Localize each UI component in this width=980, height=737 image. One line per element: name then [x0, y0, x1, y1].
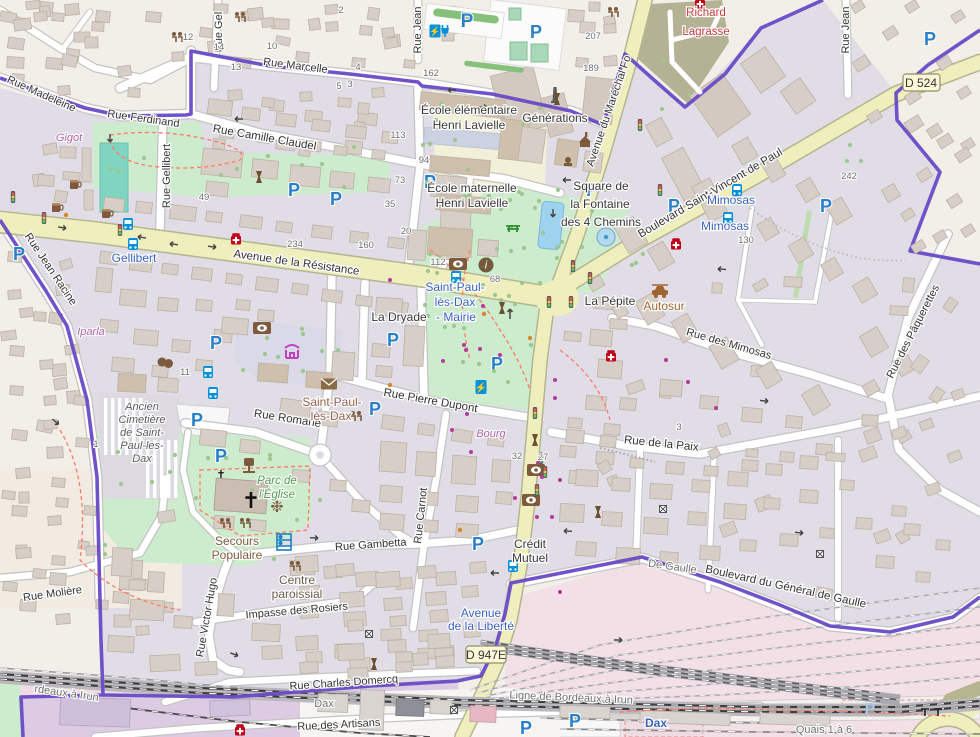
svg-text:P: P — [924, 29, 936, 49]
svg-text:P: P — [472, 534, 484, 554]
svg-text:- Mairie: - Mairie — [436, 310, 476, 324]
svg-text:3: 3 — [347, 79, 352, 90]
svg-text:49: 49 — [199, 192, 210, 203]
svg-text:⚡: ⚡ — [475, 381, 487, 394]
svg-text:4: 4 — [355, 62, 360, 73]
svg-text:lès-Dax: lès-Dax — [435, 295, 476, 309]
svg-text:P: P — [215, 446, 227, 466]
svg-text:242: 242 — [841, 171, 857, 182]
svg-text:Bourg: Bourg — [476, 428, 506, 440]
svg-text:160: 160 — [358, 240, 374, 251]
svg-text:130: 130 — [738, 235, 754, 246]
svg-text:La Pépite: La Pépite — [585, 294, 636, 308]
svg-text:Henri Lavielle: Henri Lavielle — [433, 118, 506, 132]
svg-text:P: P — [820, 196, 832, 216]
svg-text:Dax: Dax — [314, 698, 334, 710]
svg-text:Dax: Dax — [132, 453, 152, 465]
svg-text:32: 32 — [512, 451, 523, 462]
svg-text:Rue Gellibert: Rue Gellibert — [161, 144, 173, 208]
svg-text:P: P — [288, 180, 300, 200]
svg-text:Iparla: Iparla — [77, 326, 105, 338]
svg-text:Gellibert: Gellibert — [112, 251, 157, 265]
svg-text:D 524: D 524 — [905, 76, 937, 90]
svg-text:Lagrasse: Lagrasse — [682, 26, 729, 38]
svg-text:2: 2 — [338, 5, 343, 16]
svg-text:Richard: Richard — [686, 7, 726, 19]
svg-text:P: P — [865, 701, 876, 718]
svg-text:l'Église: l'Église — [259, 488, 295, 501]
svg-text:P: P — [461, 11, 474, 32]
svg-text:27: 27 — [538, 452, 549, 463]
svg-text:1: 1 — [93, 439, 98, 450]
svg-text:Populaire: Populaire — [212, 548, 263, 562]
svg-text:P: P — [520, 718, 532, 737]
svg-text:des 4 Chemins: des 4 Chemins — [561, 215, 641, 229]
svg-text:35: 35 — [385, 199, 396, 210]
svg-text:Mutuel: Mutuel — [512, 551, 548, 565]
svg-text:P: P — [387, 330, 399, 350]
svg-text:Dax: Dax — [645, 716, 667, 730]
svg-text:P: P — [569, 711, 581, 731]
svg-text:12: 12 — [183, 32, 194, 43]
svg-text:Henri Lavielle: Henri Lavielle — [436, 196, 509, 210]
svg-text:Rue Jean: Rue Jean — [412, 6, 424, 53]
svg-text:Cimetière: Cimetière — [118, 414, 165, 426]
svg-text:Mimosas: Mimosas — [707, 193, 755, 207]
svg-text:162: 162 — [423, 68, 439, 79]
svg-text:189: 189 — [583, 63, 599, 74]
svg-text:113: 113 — [390, 130, 405, 141]
svg-text:Saint-Paul-: Saint-Paul- — [302, 395, 361, 409]
svg-text:P: P — [13, 244, 25, 264]
svg-text:94: 94 — [419, 155, 430, 166]
svg-text:École élémentaire: École élémentaire — [421, 102, 517, 117]
svg-text:Paul-les-: Paul-les- — [120, 440, 164, 452]
svg-text:73: 73 — [395, 175, 406, 186]
svg-text:la Fontaine: la Fontaine — [570, 197, 630, 211]
svg-text:10: 10 — [267, 41, 278, 52]
svg-text:20: 20 — [401, 226, 412, 237]
svg-text:13: 13 — [231, 62, 242, 73]
svg-text:11: 11 — [180, 367, 190, 378]
svg-text:P: P — [191, 410, 203, 430]
svg-text:68: 68 — [490, 274, 501, 285]
svg-text:La Dryade: La Dryade — [371, 310, 427, 324]
svg-text:234: 234 — [287, 239, 303, 250]
svg-text:Avenue: Avenue — [461, 606, 502, 620]
svg-text:112: 112 — [430, 257, 445, 268]
svg-text:Gigot: Gigot — [56, 132, 83, 144]
svg-text:Square de: Square de — [573, 179, 629, 193]
svg-text:✝: ✝ — [216, 469, 225, 481]
svg-text:Centre: Centre — [279, 573, 315, 587]
svg-text:P: P — [369, 399, 381, 419]
svg-text:Saint-Paul-: Saint-Paul- — [425, 280, 484, 294]
svg-text:P: P — [330, 189, 342, 209]
svg-text:de la Liberté: de la Liberté — [448, 619, 514, 633]
svg-text:P: P — [530, 22, 542, 42]
svg-text:Autosur: Autosur — [643, 299, 684, 313]
svg-text:D 947E: D 947E — [466, 648, 506, 662]
svg-text:14: 14 — [214, 42, 225, 53]
svg-text:Secours: Secours — [215, 534, 259, 548]
svg-text:Générations: Générations — [522, 111, 587, 125]
svg-text:paroissial: paroissial — [272, 587, 323, 601]
svg-text:Quais 1 à 6: Quais 1 à 6 — [796, 724, 852, 736]
svg-text:✝: ✝ — [242, 488, 260, 513]
svg-text:Mimosas: Mimosas — [701, 219, 749, 233]
svg-text:3: 3 — [676, 422, 681, 433]
svg-text:École maternelle: École maternelle — [427, 180, 517, 195]
svg-text:⚡: ⚡ — [429, 26, 440, 38]
svg-text:Rue Jean: Rue Jean — [840, 6, 852, 53]
svg-text:lès-Dax: lès-Dax — [311, 409, 352, 423]
svg-text:de Saint-: de Saint- — [120, 427, 164, 439]
svg-text:207: 207 — [585, 31, 601, 42]
svg-text:Ancien: Ancien — [124, 401, 159, 413]
svg-text:Crédit: Crédit — [514, 537, 547, 551]
svg-text:P: P — [210, 333, 222, 353]
svg-text:❉: ❉ — [270, 499, 283, 516]
svg-text:Parc de: Parc de — [257, 475, 297, 487]
svg-text:5: 5 — [336, 81, 341, 92]
